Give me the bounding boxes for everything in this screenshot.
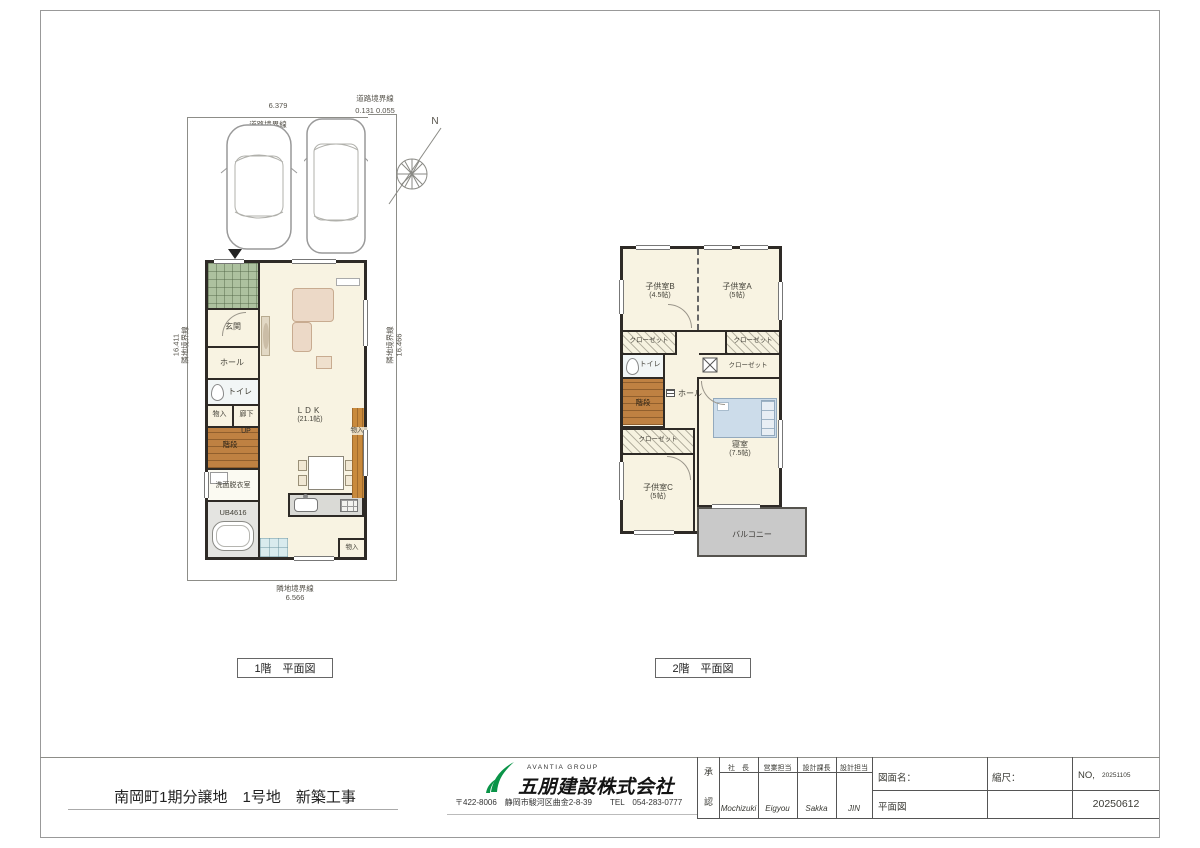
window [634,530,674,535]
window [740,245,768,250]
wall [623,453,695,455]
approval-char-1: 承 [700,765,717,778]
entrance-porch [208,263,258,310]
room-label-closet-a: クローゼット [727,337,779,345]
room-label-closet-b: クローゼット [623,337,675,345]
role-label-design-chief: 設計課長 [797,763,836,773]
room-label-hall1: ホール [208,358,256,368]
wall [675,332,677,355]
drawing-no-value: 20251105 [1102,772,1130,779]
grid-line [987,757,988,818]
bathtub-inner [216,525,250,547]
closet-box-icon [702,357,718,373]
wall [205,557,367,560]
role-label-president: 社 長 [719,763,758,773]
window [294,556,334,561]
dining-table [308,456,344,490]
role-label-designer: 設計担当 [836,763,872,773]
approval-char-2: 認 [700,795,717,808]
car-icon [220,120,298,254]
wall [699,353,779,355]
dimension-corner: 0.131 0.055 [340,106,410,115]
project-title: 南岡町1期分譲地 1号地 新築工事 [70,786,400,807]
role-value-president: Mochizuki [719,804,758,813]
room-label-stairs1: 階段 [210,440,250,449]
smoke-detector-icon [666,389,675,397]
window [704,245,732,250]
boundary-line [187,580,397,581]
company-name: 五朋建設株式会社 [518,772,674,799]
window [619,280,624,314]
grid-line [1072,757,1073,818]
kids-b-name: 子供室B [630,282,690,292]
kids-c-name: 子供室C [628,483,688,493]
drawing-sheet: { "site": { "road_label_top": "道路境界線", "… [0,0,1200,848]
bed-headboard [761,400,775,436]
logo-underline [447,814,697,815]
role-value-sales: Eigyou [758,804,797,813]
chair [298,475,307,486]
kids-b-size: (4.5帖) [630,292,690,300]
grid-line [697,757,698,818]
window [363,300,368,346]
kitchen-stove [340,499,358,512]
sofa-chaise [292,322,312,352]
room-label-toilet2: トイレ [636,361,664,369]
kids-a-name: 子供室A [707,282,767,292]
drawing-date: 20250612 [1085,798,1147,810]
window [619,462,624,500]
wall [697,377,699,505]
floor1-caption-box: 1階 平面図 [237,658,333,678]
role-value-designer: JIN [836,804,872,813]
road-boundary-label-right: 道路境界線 [340,93,410,104]
floor2-caption: 2階 平面図 [672,660,733,676]
room-label-closet-c: クローゼット [625,436,691,444]
drawing-no-label: NO, [1078,770,1095,781]
room-label-bedroom: 寝室 (7.5帖) [712,440,768,458]
room-label-kids-a: 子供室A (5帖) [707,282,767,300]
wall [208,346,258,348]
car-icon [304,116,368,256]
room-label-storage-bottom: 物入 [340,544,364,552]
drawing-name: 平面図 [878,799,907,813]
grid-line [872,790,1159,791]
floor2-caption-box: 2階 平面図 [655,658,751,678]
dimension-bottom: 6.566 [250,593,340,602]
grid-line [872,757,873,818]
partition-dashed [697,249,699,330]
tile-floor [260,538,288,557]
ldk-name: LDK [280,406,340,416]
room-label-kids-b: 子供室B (4.5帖) [630,282,690,300]
sofa [292,288,334,322]
room-label-ldk: LDK (21.1帖) [280,406,340,424]
room-label-toilet1: トイレ [222,387,258,397]
drawing-name-label: 図面名： [878,770,916,784]
window [778,282,783,320]
room-label-washroom: 洗面脱衣室 [206,482,260,490]
wall [623,428,695,430]
room-label-wic: クローゼット [720,362,776,370]
role-label-sales: 営業担当 [758,763,797,773]
wall [258,263,260,557]
dimension-right: 16.466 [395,334,404,357]
tv-icon [263,323,269,349]
company-tel: TEL 054-283-0777 [610,797,682,808]
chair [298,460,307,471]
compass-icon [386,120,444,208]
role-value-design-chief: Sakka [797,804,836,813]
up-label: UP [236,428,256,436]
kids-a-size: (5帖) [707,292,767,300]
titleblock-separator [40,757,1160,758]
room-label-corridor: 廊下 [234,411,259,419]
wall [208,308,258,310]
window [363,430,368,476]
room-label-hall2: ホール [676,389,704,399]
left-boundary-label: 隣地境界線 [180,326,191,364]
company-logo-leaf-icon [483,760,519,794]
room-label-stairs2: 階段 [625,398,661,407]
entrance-arrow-icon [228,249,242,259]
room-label-storage-hall: 物入 [207,411,232,419]
company-address: 〒422-8006 静岡市駿河区曲金2-8-39 [455,797,592,808]
dimension-top: 6.379 [248,101,308,110]
kitchen-sink [294,498,318,512]
room-label-kids-c: 子供室C (5帖) [628,483,688,501]
bedroom-name: 寝室 [712,440,768,450]
room-label-balcony: バルコニー [712,530,792,540]
window [778,420,783,468]
company-group: AVANTIA GROUP [527,764,599,771]
room-label-bath: UB4616 [208,508,258,517]
window [292,259,336,264]
wall [338,538,364,540]
project-underline [68,809,398,810]
wall [693,428,695,531]
grid-line [697,818,1159,819]
north-label: N [428,116,442,127]
window [214,259,244,264]
sofa-table [316,356,332,369]
ldk-size: (21.1帖) [280,416,340,424]
window [636,245,670,250]
floor1-caption: 1階 平面図 [254,660,315,676]
window [204,472,209,498]
kitchen-faucet [303,494,308,499]
cabinet [336,278,360,286]
bedroom-size: (7.5帖) [712,450,768,458]
kids-c-size: (5帖) [628,493,688,501]
scale-label: 縮尺： [992,770,1021,784]
wall [699,377,779,379]
window [712,504,760,509]
